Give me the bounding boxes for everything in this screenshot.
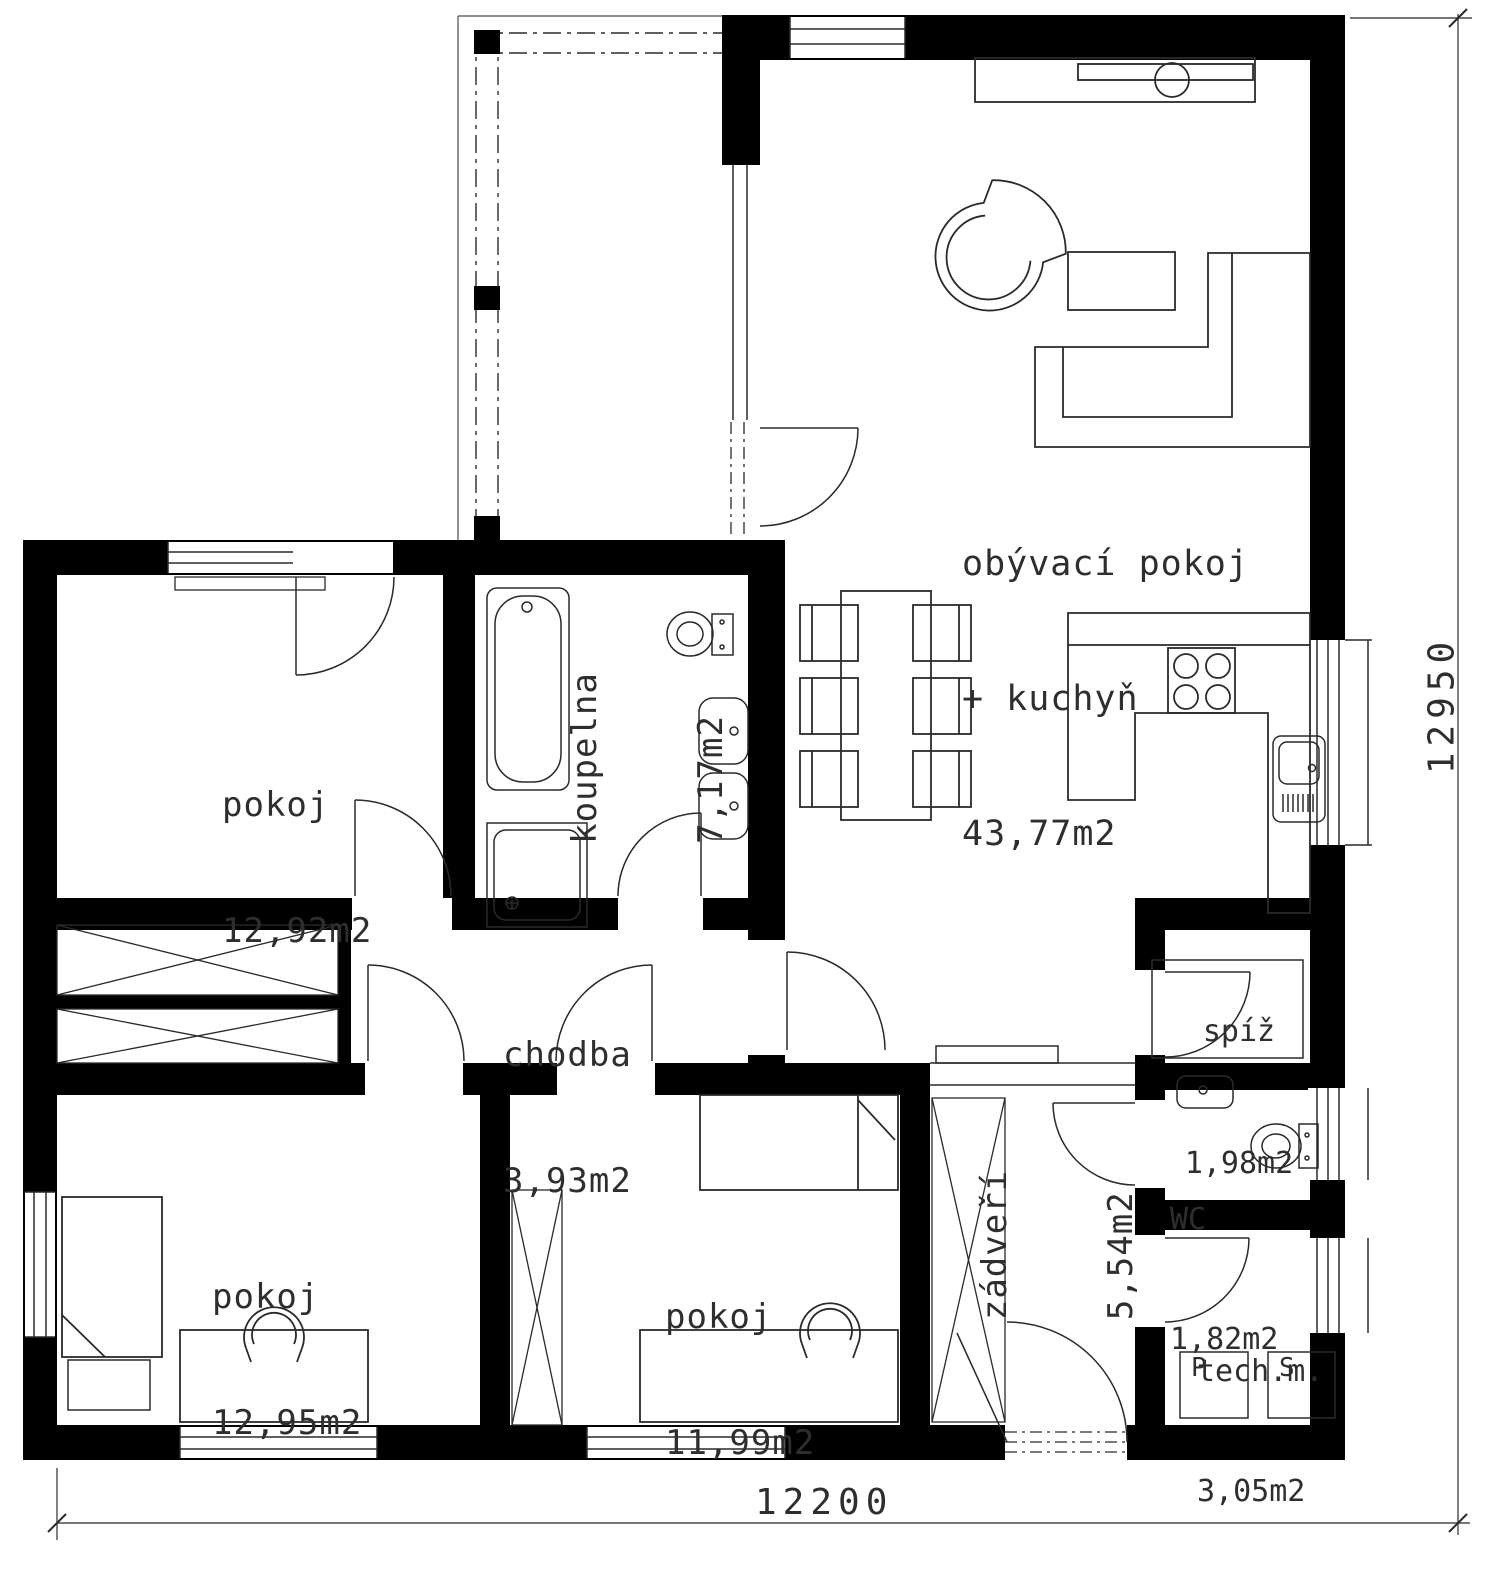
door-entrance <box>957 1322 1127 1442</box>
room-label-hallway: chodba 3,93m2 <box>503 950 632 1286</box>
dimension-width: 12200 <box>755 1482 893 1523</box>
window <box>168 542 293 573</box>
room-name: tech.m. <box>1197 1352 1323 1392</box>
room-name: pokoj <box>665 1296 815 1338</box>
room-label-vestibule: zádveří 5,54m2 <box>890 1170 1226 1320</box>
washer-label: P <box>1191 1355 1207 1381</box>
room-area: 12,95m2 <box>212 1402 362 1444</box>
window <box>1308 640 1372 845</box>
room-name: chodba <box>503 1034 632 1076</box>
room-name: pokoj <box>222 784 372 826</box>
window <box>790 17 905 58</box>
dimension-height: 12950 <box>1422 636 1463 774</box>
floor-plan: obývací pokoj + kuchyň 43,77m2 pokoj 12,… <box>0 0 1488 1571</box>
door-hall-living <box>787 952 885 1050</box>
tv-cabinet <box>975 58 1255 102</box>
room-area: 3,93m2 <box>503 1160 632 1202</box>
terrace <box>458 16 722 540</box>
room-name: spíž <box>1168 1010 1310 1054</box>
bed <box>62 1197 162 1410</box>
radiator <box>175 577 325 590</box>
dining-chair <box>800 605 858 661</box>
room-area: 11,99m2 <box>665 1422 815 1464</box>
room-area: 5,54m2 <box>1100 1170 1142 1320</box>
door-room2 <box>368 965 464 1061</box>
room-area: 43,77m2 <box>962 812 1249 857</box>
dining-table <box>841 591 931 820</box>
dryer-label: S <box>1279 1355 1295 1381</box>
terrace-columns <box>474 30 500 540</box>
room-label-bathroom: koupelna 7,17m2 <box>480 672 816 844</box>
room-label-living: obývací pokoj + kuchyň 43,77m2 <box>962 452 1249 947</box>
window <box>724 165 758 420</box>
window <box>1308 1088 1368 1180</box>
room-name: obývací pokoj <box>962 542 1249 587</box>
door-room1-terrace <box>296 577 394 675</box>
room-area: 7,17m2 <box>690 672 732 844</box>
sofa <box>1035 253 1310 447</box>
armchair <box>913 163 1083 333</box>
coffee-table <box>1068 252 1175 310</box>
room-area: 12,92m2 <box>222 910 372 952</box>
room-name: + kuchyň <box>962 677 1249 722</box>
room-name: pokoj <box>212 1276 362 1318</box>
window <box>25 1192 55 1337</box>
room-name: koupelna <box>564 672 606 844</box>
room-area: 3,05m2 <box>1197 1472 1323 1512</box>
room-name: zádveří <box>974 1170 1016 1320</box>
room-label-room1: pokoj 12,92m2 <box>222 700 372 1036</box>
sliding-door <box>930 1046 1135 1085</box>
bed <box>700 1095 898 1190</box>
door-terrace-living <box>760 428 858 526</box>
room-label-room2: pokoj 12,95m2 <box>212 1192 362 1528</box>
toilet <box>667 612 733 656</box>
